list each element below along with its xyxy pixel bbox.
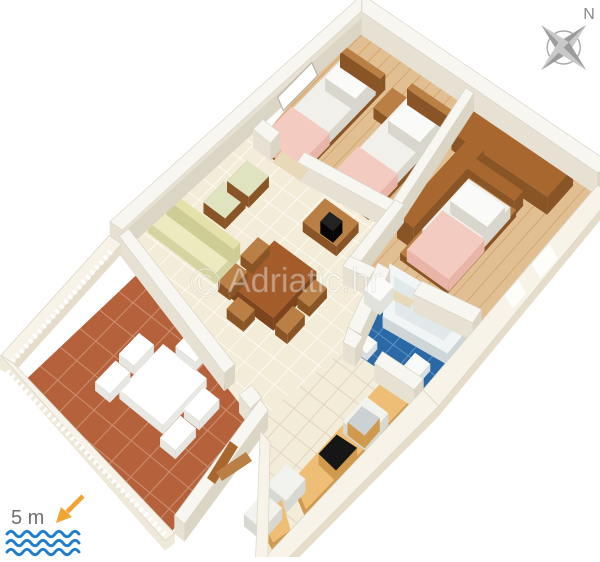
svg-text:N: N	[583, 6, 595, 23]
svg-text:5 m: 5 m	[11, 507, 44, 529]
svg-text:©: ©	[190, 259, 221, 306]
svg-text:Adriatic.hr: Adriatic.hr	[228, 262, 381, 300]
